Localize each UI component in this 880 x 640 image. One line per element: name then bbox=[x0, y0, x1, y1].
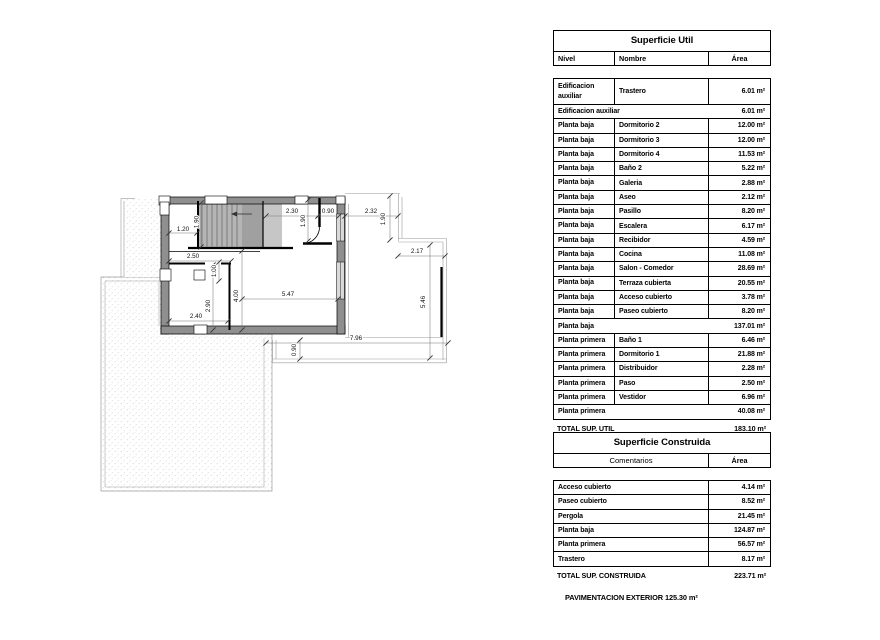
cell-nombre: Dormitorio 3 bbox=[614, 134, 708, 147]
cell-nivel: Planta primera bbox=[554, 334, 614, 347]
cell-area: 5.22 m² bbox=[708, 162, 770, 175]
cell-nombre: Trastero bbox=[614, 79, 708, 104]
table-body: Acceso cubierto4.14 m²Paseo cubierto8.52… bbox=[553, 480, 771, 567]
cell-nivel: Planta baja bbox=[554, 248, 614, 261]
cell-area: 2.12 m² bbox=[708, 191, 770, 204]
cell-subtotal-area: 137.01 m² bbox=[708, 319, 770, 332]
cell-nombre: Escalera bbox=[614, 219, 708, 232]
table-row: Planta primera40.08 m² bbox=[554, 404, 770, 418]
cell-subtotal-area: 6.01 m² bbox=[708, 105, 770, 118]
table-row: Planta bajaDormitorio 411.53 m² bbox=[554, 147, 770, 161]
cell-label: Planta baja bbox=[554, 524, 708, 537]
table-row: Planta primera56.57 m² bbox=[554, 537, 770, 551]
table-header-row: Comentarios Área bbox=[554, 454, 770, 467]
door-swing-arc bbox=[303, 227, 320, 244]
cell-nombre: Acceso cubierto bbox=[614, 291, 708, 304]
cell-area: 2.28 m² bbox=[708, 362, 770, 375]
table-row: Planta bajaDormitorio 312.00 m² bbox=[554, 133, 770, 147]
dimension-label: 4.00 bbox=[233, 289, 240, 302]
cell-subtotal-label: Planta primera bbox=[554, 405, 708, 418]
table-row: Planta bajaPaseo cubierto8.20 m² bbox=[554, 304, 770, 318]
cell-subtotal-label: Planta baja bbox=[554, 319, 708, 332]
table-row: Planta bajaBaño 25.22 m² bbox=[554, 161, 770, 175]
dimension-label: 7.96 bbox=[350, 335, 363, 342]
cell-nombre: Paseo cubierto bbox=[614, 305, 708, 318]
table-row: Planta bajaRecibidor4.59 m² bbox=[554, 233, 770, 247]
table-row: Trastero8.17 m² bbox=[554, 551, 770, 565]
cell-nivel: Planta primera bbox=[554, 391, 614, 404]
table-row: Edificacion auxiliarTrastero6.01 m² bbox=[554, 79, 770, 104]
cell-nombre: Salon - Comedor bbox=[614, 262, 708, 275]
superficie-construida-table: Superficie Construida Comentarios Área A… bbox=[553, 432, 771, 580]
table-header-row: Nivel Nombre Área bbox=[554, 52, 770, 65]
cell-nombre: Baño 1 bbox=[614, 334, 708, 347]
cell-label: Pergola bbox=[554, 510, 708, 523]
cell-nombre: Paso bbox=[614, 377, 708, 390]
total-row: TOTAL SUP. UTIL 183.10 m² bbox=[553, 420, 771, 433]
cell-label: Paseo cubierto bbox=[554, 495, 708, 508]
dimension-label: 2.30 bbox=[286, 208, 299, 215]
floor-plan: 1.201.902.300.902.321.901.902.175.462.50… bbox=[0, 0, 500, 640]
table-row: Planta primeraDormitorio 121.88 m² bbox=[554, 347, 770, 361]
column-header-nivel: Nivel bbox=[554, 52, 614, 65]
cell-nivel: Planta baja bbox=[554, 119, 614, 132]
cell-nombre: Distribuidor bbox=[614, 362, 708, 375]
cell-nombre: Terraza cubierta bbox=[614, 277, 708, 290]
dimension-label: 5.47 bbox=[282, 291, 295, 298]
dimension-label: 1.90 bbox=[194, 215, 201, 228]
dimension-label: 1.20 bbox=[177, 226, 190, 233]
total-row: TOTAL SUP. CONSTRUIDA 223.71 m² bbox=[553, 567, 771, 580]
cell-label: Planta primera bbox=[554, 538, 708, 551]
cell-nombre: Dormitorio 2 bbox=[614, 119, 708, 132]
cell-nivel: Planta primera bbox=[554, 348, 614, 361]
cell-nombre: Recibidor bbox=[614, 234, 708, 247]
cell-nivel: Edificacion auxiliar bbox=[554, 79, 614, 104]
cell-nivel: Planta baja bbox=[554, 277, 614, 290]
table-row: Planta primeraPaso2.50 m² bbox=[554, 376, 770, 390]
table-row: Edificacion auxiliar6.01 m² bbox=[554, 104, 770, 118]
cell-nivel: Planta baja bbox=[554, 234, 614, 247]
table-row: Paseo cubierto8.52 m² bbox=[554, 494, 770, 508]
terrace-pergola bbox=[101, 277, 272, 491]
cell-area: 124.87 m² bbox=[708, 524, 770, 537]
cell-area: 8.20 m² bbox=[708, 205, 770, 218]
cell-area: 3.78 m² bbox=[708, 291, 770, 304]
staircase bbox=[197, 201, 282, 247]
cell-nombre: Dormitorio 1 bbox=[614, 348, 708, 361]
table-row: Planta bajaEscalera6.17 m² bbox=[554, 218, 770, 232]
dimension-label: 2.32 bbox=[365, 208, 378, 215]
table-row: Planta primeraVestidor6.96 m² bbox=[554, 390, 770, 404]
cell-area: 8.20 m² bbox=[708, 305, 770, 318]
total-label: TOTAL SUP. CONSTRUIDA bbox=[557, 571, 646, 580]
cell-subtotal-area: 40.08 m² bbox=[708, 405, 770, 418]
table-row: Planta primeraBaño 16.46 m² bbox=[554, 333, 770, 347]
column-header-nombre: Nombre bbox=[614, 52, 708, 65]
dimension-label: 0.90 bbox=[291, 343, 298, 356]
dimension-label: 5.46 bbox=[420, 295, 427, 308]
left-paseo-strip bbox=[121, 199, 161, 278]
cell-nombre: Baño 2 bbox=[614, 162, 708, 175]
cell-nombre: Galeria bbox=[614, 176, 708, 189]
cell-subtotal-label: Edificacion auxiliar bbox=[554, 105, 708, 118]
cell-nivel: Planta baja bbox=[554, 162, 614, 175]
cell-nombre: Aseo bbox=[614, 191, 708, 204]
cell-area: 56.57 m² bbox=[708, 538, 770, 551]
dimension-label: 1.90 bbox=[300, 214, 307, 227]
cell-nivel: Planta baja bbox=[554, 191, 614, 204]
cell-area: 8.52 m² bbox=[708, 495, 770, 508]
cell-area: 20.55 m² bbox=[708, 277, 770, 290]
cell-label: Acceso cubierto bbox=[554, 481, 708, 494]
cell-area: 4.59 m² bbox=[708, 234, 770, 247]
dimension-label: 2.17 bbox=[411, 248, 424, 255]
cell-area: 21.45 m² bbox=[708, 510, 770, 523]
table-row: Planta bajaGaleria2.88 m² bbox=[554, 175, 770, 189]
table-row: Planta bajaAcceso cubierto3.78 m² bbox=[554, 290, 770, 304]
cell-nivel: Planta baja bbox=[554, 219, 614, 232]
column-header-area: Área bbox=[708, 454, 770, 467]
pavimentacion-note: PAVIMENTACION EXTERIOR 125.30 m² bbox=[565, 593, 698, 602]
table-row: Planta bajaCocina11.08 m² bbox=[554, 247, 770, 261]
dimension-label: 1.90 bbox=[380, 212, 387, 225]
cell-area: 6.17 m² bbox=[708, 219, 770, 232]
table-row: Planta bajaDormitorio 212.00 m² bbox=[554, 118, 770, 132]
dimension-label: 1.00 bbox=[211, 264, 218, 277]
dimension-label: 2.90 bbox=[205, 299, 212, 312]
cell-nivel: Planta primera bbox=[554, 362, 614, 375]
cell-label: Trastero bbox=[554, 552, 708, 565]
dimension-label: 2.50 bbox=[187, 253, 200, 260]
cell-nivel: Planta baja bbox=[554, 305, 614, 318]
table-title: Superficie Construida bbox=[554, 433, 770, 454]
table-row: Acceso cubierto4.14 m² bbox=[554, 481, 770, 494]
cell-area: 21.88 m² bbox=[708, 348, 770, 361]
total-value: 223.71 m² bbox=[734, 571, 766, 580]
cell-area: 8.17 m² bbox=[708, 552, 770, 565]
superficie-util-table: Superficie Util Nivel Nombre Área Edific… bbox=[553, 30, 771, 433]
dimension-label: 0.90 bbox=[322, 208, 335, 215]
table-row: Pergola21.45 m² bbox=[554, 509, 770, 523]
dimension-label: 2.40 bbox=[190, 313, 203, 320]
cell-area: 2.88 m² bbox=[708, 176, 770, 189]
cell-nivel: Planta baja bbox=[554, 205, 614, 218]
plan-sheet: 1.201.902.300.902.321.901.902.175.462.50… bbox=[0, 0, 880, 640]
cell-nivel: Planta baja bbox=[554, 134, 614, 147]
table-row: Planta bajaAseo2.12 m² bbox=[554, 190, 770, 204]
cell-area: 12.00 m² bbox=[708, 119, 770, 132]
cell-nivel: Planta baja bbox=[554, 148, 614, 161]
cell-area: 12.00 m² bbox=[708, 134, 770, 147]
table-row: Planta baja124.87 m² bbox=[554, 523, 770, 537]
cell-area: 2.50 m² bbox=[708, 377, 770, 390]
table-row: Planta baja137.01 m² bbox=[554, 318, 770, 332]
cell-nivel: Planta primera bbox=[554, 377, 614, 390]
cell-area: 11.08 m² bbox=[708, 248, 770, 261]
cell-area: 4.14 m² bbox=[708, 481, 770, 494]
cell-nivel: Planta baja bbox=[554, 262, 614, 275]
cell-nivel: Planta baja bbox=[554, 176, 614, 189]
column-header-area: Área bbox=[708, 52, 770, 65]
table-row: Planta bajaTerraza cubierta20.55 m² bbox=[554, 276, 770, 290]
cell-area: 6.96 m² bbox=[708, 391, 770, 404]
cell-area: 28.69 m² bbox=[708, 262, 770, 275]
cell-area: 6.46 m² bbox=[708, 334, 770, 347]
cell-nombre: Pasillo bbox=[614, 205, 708, 218]
table-row: Planta bajaPasillo8.20 m² bbox=[554, 204, 770, 218]
table-body: Edificacion auxiliarTrastero6.01 m²Edifi… bbox=[553, 78, 771, 420]
cell-nombre: Cocina bbox=[614, 248, 708, 261]
table-title: Superficie Util bbox=[554, 31, 770, 52]
cell-area: 11.53 m² bbox=[708, 148, 770, 161]
cell-nivel: Planta baja bbox=[554, 291, 614, 304]
cell-area: 6.01 m² bbox=[708, 79, 770, 104]
table-row: Planta bajaSalon - Comedor28.69 m² bbox=[554, 261, 770, 275]
cell-nombre: Dormitorio 4 bbox=[614, 148, 708, 161]
table-row: Planta primeraDistribuidor2.28 m² bbox=[554, 361, 770, 375]
cell-nombre: Vestidor bbox=[614, 391, 708, 404]
column-header-comentarios: Comentarios bbox=[554, 454, 708, 467]
